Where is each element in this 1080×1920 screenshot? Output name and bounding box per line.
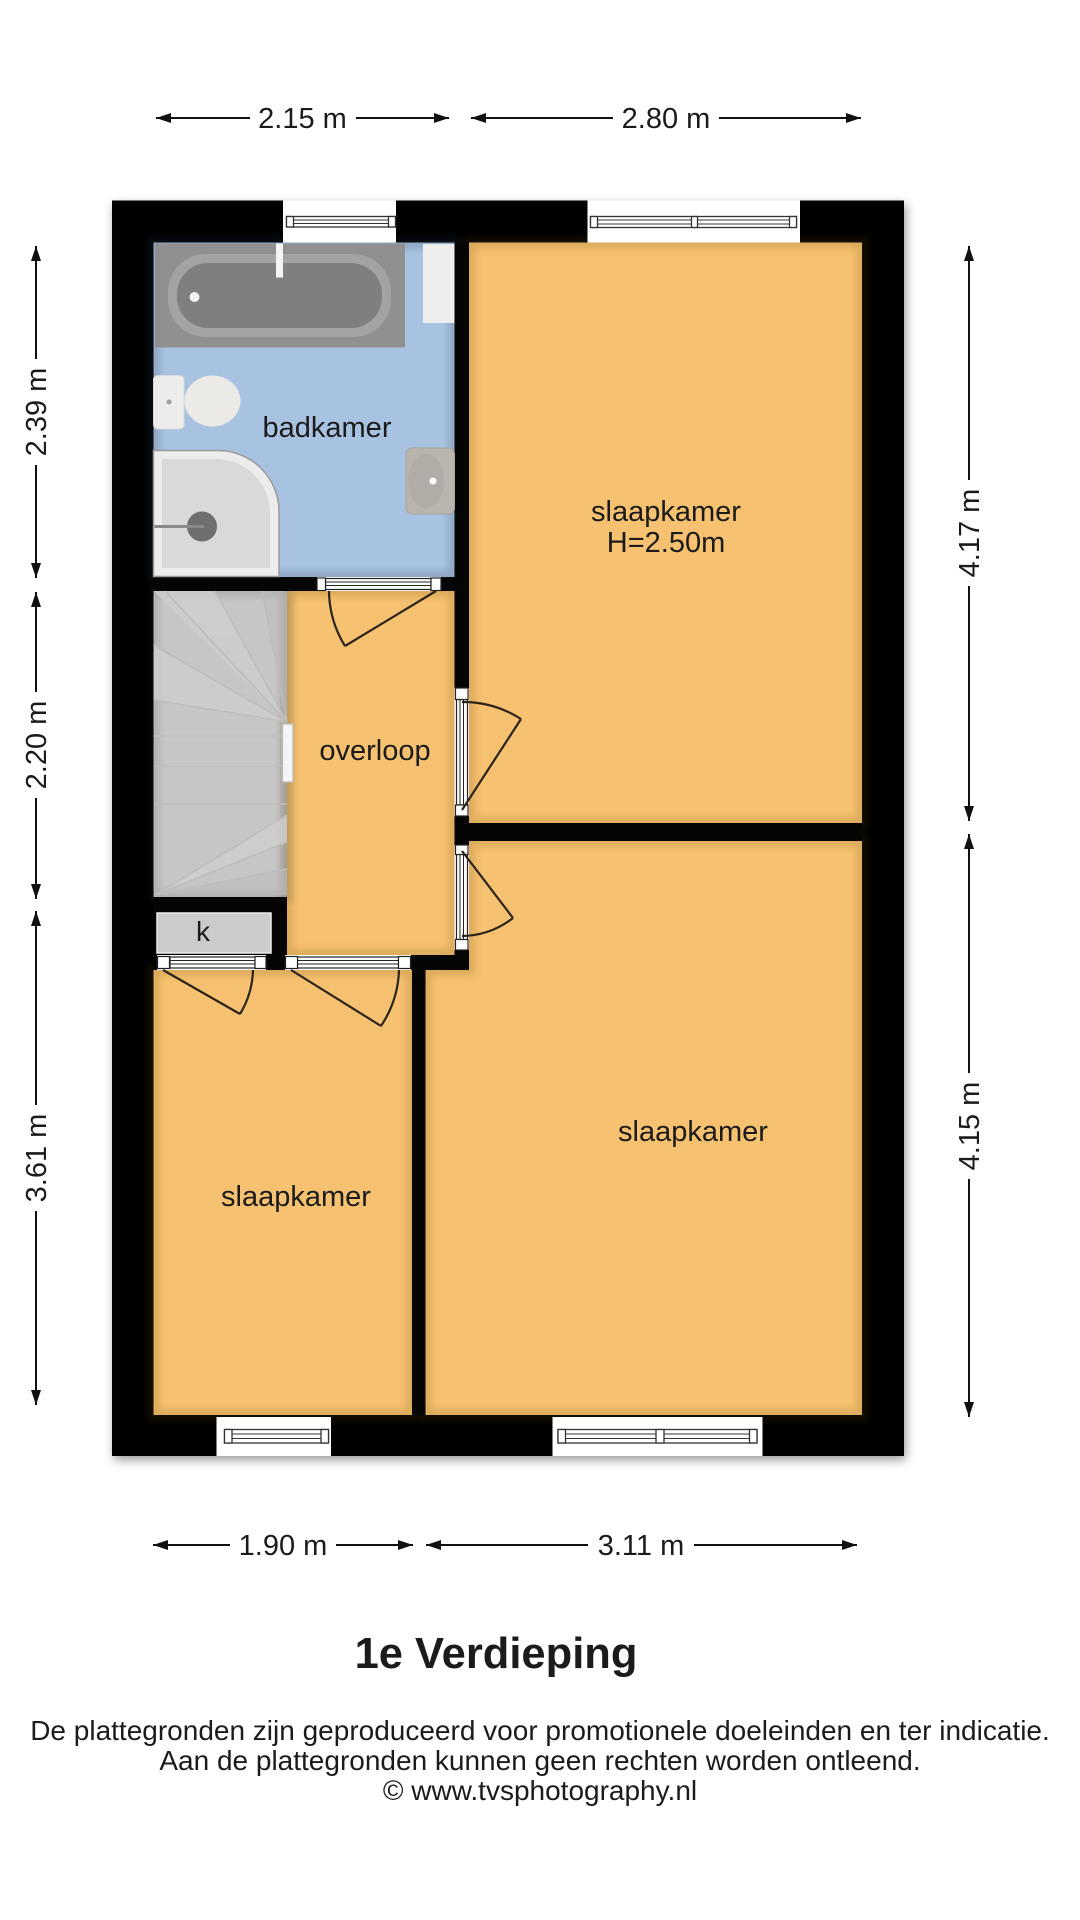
svg-text:slaapkamer: slaapkamer [618,1116,768,1148]
svg-text:overloop: overloop [319,735,430,767]
svg-text:2.39 m: 2.39 m [21,368,53,457]
svg-text:slaapkamer: slaapkamer [591,496,741,528]
svg-text:1.90 m: 1.90 m [239,1530,328,1562]
svg-text:H=2.50m: H=2.50m [607,527,725,559]
svg-text:3.11 m: 3.11 m [598,1530,685,1562]
svg-text:De plattegronden zijn geproduc: De plattegronden zijn geproduceerd voor … [30,1715,1050,1746]
svg-text:2.80 m: 2.80 m [622,103,711,135]
svg-text:badkamer: badkamer [263,412,392,444]
svg-text:slaapkamer: slaapkamer [221,1181,371,1213]
svg-text:k: k [196,916,211,947]
svg-text:Aan de plattegronden kunnen ge: Aan de plattegronden kunnen geen rechten… [159,1745,920,1776]
svg-text:2.20 m: 2.20 m [21,701,53,790]
svg-text:1e Verdieping: 1e Verdieping [355,1630,638,1678]
svg-text:4.15 m: 4.15 m [954,1082,986,1171]
svg-text:© www.tvsphotography.nl: © www.tvsphotography.nl [383,1775,697,1806]
svg-text:2.15 m: 2.15 m [258,103,347,135]
svg-text:3.61 m: 3.61 m [21,1114,53,1203]
svg-text:4.17 m: 4.17 m [954,489,986,578]
